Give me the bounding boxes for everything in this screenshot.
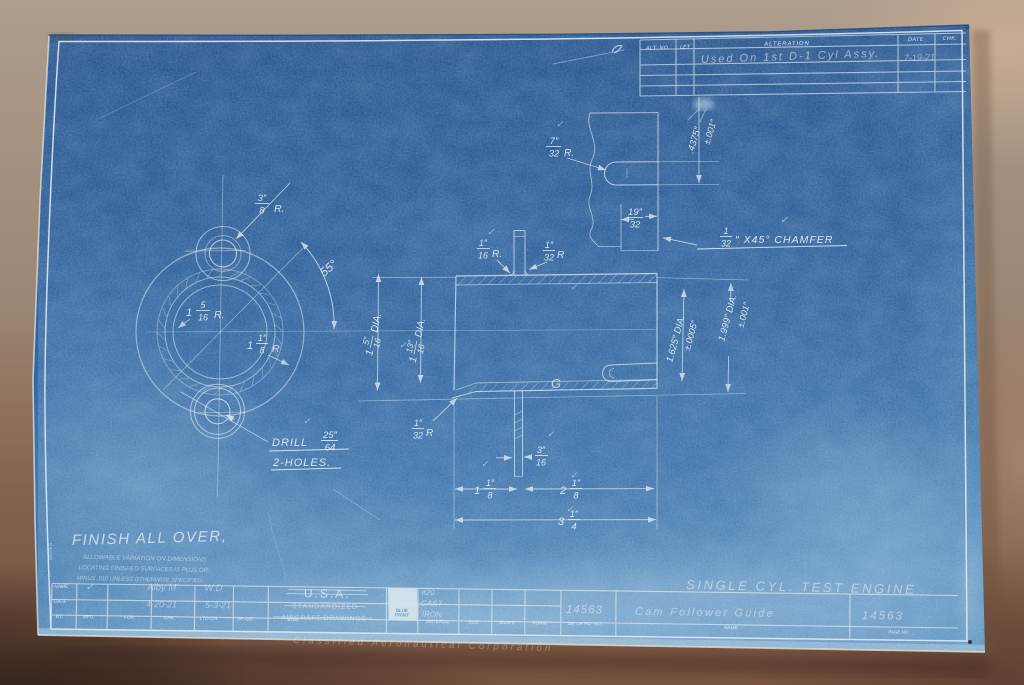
svg-text:NAME: NAME	[54, 584, 69, 590]
svg-text:DATE: DATE	[908, 37, 924, 43]
svg-text:32: 32	[721, 239, 731, 249]
svg-text:16: 16	[198, 313, 208, 323]
svg-text:DIE OR PAT. NO.: DIE OR PAT. NO.	[568, 621, 602, 626]
svg-text:32: 32	[630, 220, 641, 231]
svg-text:R.: R.	[274, 203, 285, 215]
svg-text:#20: #20	[421, 588, 435, 597]
svg-text:25″: 25″	[322, 430, 338, 441]
svg-text:4-20-21: 4-20-21	[146, 599, 177, 609]
svg-text:16: 16	[478, 251, 488, 261]
svg-text:8: 8	[487, 491, 492, 501]
svg-text:✓: ✓	[547, 429, 555, 439]
svg-text:SP. GR.: SP. GR.	[237, 616, 254, 622]
svg-text:1: 1	[723, 226, 728, 236]
svg-text:1″: 1″	[486, 478, 495, 488]
svg-text:32: 32	[544, 253, 554, 263]
svg-text:″ X45° CHAMFER: ″ X45° CHAMFER	[735, 234, 833, 246]
svg-text:3″: 3″	[258, 193, 267, 204]
svg-text:ALT. NO.: ALT. NO.	[645, 45, 670, 51]
svg-text:PRINT: PRINT	[395, 613, 409, 618]
svg-text:R.: R.	[492, 249, 502, 260]
svg-text:7″: 7″	[550, 136, 559, 147]
svg-text:Alby M: Alby M	[146, 582, 176, 593]
svg-text:✓: ✓	[570, 282, 578, 292]
svg-text:CHK.: CHK.	[942, 36, 957, 42]
svg-text:1″: 1″	[545, 240, 554, 250]
svg-text:✓: ✓	[780, 215, 789, 226]
svg-text:4: 4	[571, 522, 576, 532]
svg-text:LET: LET	[680, 45, 691, 51]
svg-text:DATE: DATE	[54, 599, 67, 605]
svg-text:8: 8	[573, 491, 578, 501]
svg-text:7-19-21: 7-19-21	[904, 52, 935, 63]
svg-text:1: 1	[247, 340, 253, 352]
svg-text:8: 8	[259, 346, 264, 356]
svg-text:3″: 3″	[537, 445, 546, 455]
svg-text:3: 3	[558, 516, 565, 528]
svg-text:19″: 19″	[628, 207, 643, 218]
svg-text:FORM: FORM	[533, 620, 547, 626]
svg-text:32: 32	[549, 149, 560, 160]
svg-text:FOR.: FOR.	[124, 615, 136, 621]
svg-text:5-3-21: 5-3-21	[205, 600, 231, 610]
svg-text:R: R	[272, 343, 280, 355]
svg-text:✓: ✓	[570, 470, 578, 480]
svg-text:SIZE: SIZE	[468, 620, 480, 626]
svg-text:✓: ✓	[399, 340, 407, 350]
svg-text:64: 64	[325, 443, 336, 454]
svg-text:PAGE NO.: PAGE NO.	[888, 629, 909, 634]
svg-text:Cam Follower Guide: Cam Follower Guide	[635, 606, 775, 620]
svg-text:✓: ✓	[556, 119, 564, 129]
svg-text:14563: 14563	[566, 604, 603, 617]
svg-text:G: G	[551, 376, 561, 391]
svg-text:W.D: W.D	[204, 583, 222, 594]
svg-text:CHK.: CHK.	[164, 615, 176, 621]
svg-text:✓: ✓	[303, 416, 311, 426]
svg-text:✓: ✓	[487, 227, 495, 237]
svg-text:STANDARDIZED: STANDARDIZED	[292, 603, 358, 611]
svg-text:✓: ✓	[85, 581, 95, 593]
svg-text:✓: ✓	[481, 459, 489, 469]
svg-text:LTD-CH.: LTD-CH.	[200, 616, 219, 622]
svg-text:R: R	[426, 428, 433, 439]
svg-text:R.: R.	[214, 309, 225, 321]
svg-text:ALTERATION: ALTERATION	[763, 41, 810, 48]
svg-text:AIRCRAFT DRAWINGS: AIRCRAFT DRAWINGS	[281, 614, 366, 622]
svg-text:1″: 1″	[258, 333, 267, 343]
svg-text:16: 16	[536, 458, 546, 468]
svg-text:DRILL: DRILL	[272, 437, 308, 449]
svg-text:NAME: NAME	[724, 625, 739, 631]
svg-text:IRON: IRON	[422, 610, 442, 619]
svg-text:BY.: BY.	[56, 614, 63, 620]
svg-text:1: 1	[186, 307, 192, 319]
svg-text:SHAPE: SHAPE	[499, 620, 516, 626]
svg-text:✓: ✓	[566, 504, 574, 514]
svg-text:NOTES: NOTES	[48, 542, 54, 560]
svg-text:MFG.: MFG.	[83, 614, 95, 620]
svg-text:1: 1	[474, 485, 480, 497]
svg-text:1″: 1″	[414, 418, 423, 428]
svg-text:14563: 14563	[862, 610, 904, 623]
svg-text:32: 32	[413, 431, 423, 441]
svg-text:2: 2	[559, 485, 566, 497]
svg-text:1″: 1″	[479, 238, 488, 248]
svg-text:8: 8	[259, 206, 265, 217]
svg-text:MATERIAL: MATERIAL	[426, 619, 450, 625]
svg-text:2-HOLES.: 2-HOLES.	[272, 457, 331, 469]
svg-text:CAST: CAST	[421, 599, 444, 608]
svg-text:R.: R.	[564, 148, 574, 159]
svg-text:R: R	[557, 250, 564, 261]
